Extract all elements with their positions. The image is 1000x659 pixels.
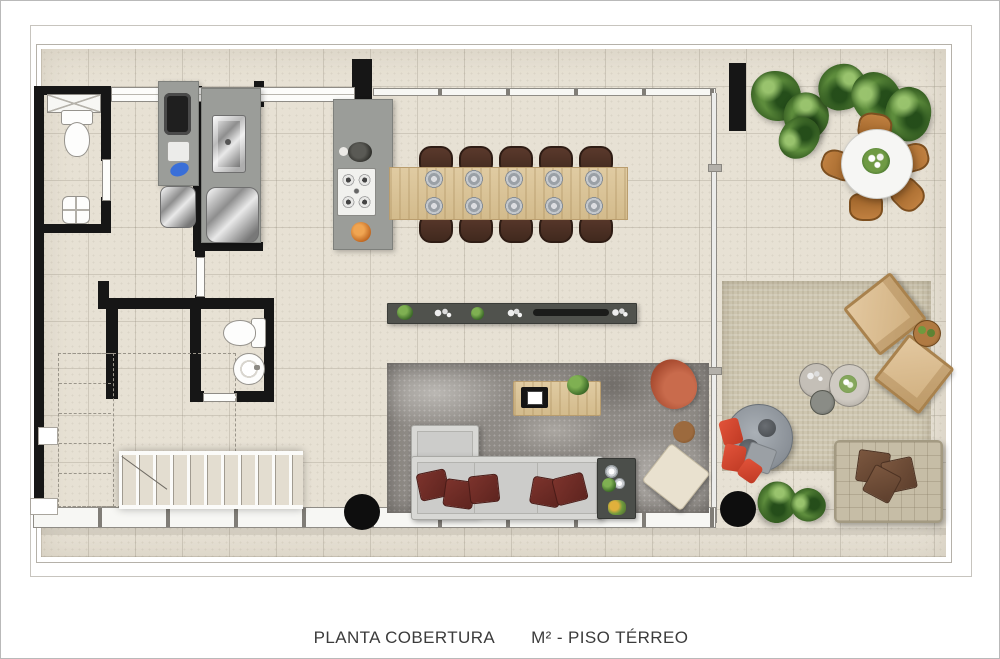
bath1-sink xyxy=(62,196,90,224)
balcony-shadow-line xyxy=(41,528,946,535)
staircase xyxy=(119,451,303,509)
place-setting xyxy=(583,195,605,217)
side-glass-wall xyxy=(711,93,717,523)
island-platter xyxy=(348,142,372,162)
tv-screen xyxy=(527,391,543,405)
powder-toilet-bowl xyxy=(223,320,256,346)
coffee-table-plant xyxy=(567,375,589,395)
place-setting xyxy=(423,195,445,217)
toilet-bowl xyxy=(64,122,90,157)
caption-area-label: M² - PISO TÉRREO xyxy=(531,628,688,648)
place-setting xyxy=(463,168,485,190)
place-setting xyxy=(503,195,525,217)
caption: PLANTA COBERTURA M² - PISO TÉRREO xyxy=(251,628,751,648)
wall-niche xyxy=(38,427,58,445)
powder-sink-round xyxy=(233,353,265,385)
fruit-bowl xyxy=(351,222,371,242)
bath1-door xyxy=(102,159,111,201)
wall-bath1-bottom xyxy=(34,224,111,233)
door-jamb-upper xyxy=(195,249,205,257)
place-setting xyxy=(583,168,605,190)
laundry-door xyxy=(196,257,205,297)
built-in-oven xyxy=(164,93,191,135)
fireplace-slot xyxy=(533,309,609,316)
place-setting xyxy=(503,168,525,190)
structural-column xyxy=(344,494,380,530)
drink-green xyxy=(927,329,935,337)
floor-plan: PLANTA COBERTURA M² - PISO TÉRREO xyxy=(0,0,1000,659)
boiler-small xyxy=(160,186,196,228)
side-table-small xyxy=(810,390,835,415)
coffee-table-tray xyxy=(806,369,824,383)
place-setting xyxy=(543,168,565,190)
top-glass-wall xyxy=(373,88,716,96)
void-dash-line xyxy=(59,473,111,474)
table-flowers xyxy=(839,375,857,393)
serving-plate xyxy=(605,465,618,478)
cooktop xyxy=(337,168,376,216)
void-dash-line xyxy=(59,443,111,444)
place-setting xyxy=(543,195,565,217)
side-table-round xyxy=(673,421,695,443)
glass-joint xyxy=(708,367,722,375)
sideboard-dishes xyxy=(507,308,523,318)
sideboard-cups xyxy=(611,308,629,317)
window-sill-corner xyxy=(30,498,58,515)
structural-column xyxy=(720,491,756,527)
table-centerpiece-flowers xyxy=(862,148,890,174)
wall-bath1-right-upper xyxy=(101,86,111,161)
void-projection-inner xyxy=(58,353,114,507)
powder-sink-tap xyxy=(254,365,260,370)
wall-powder-right xyxy=(264,298,274,401)
boiler-large xyxy=(206,187,259,243)
fruit-tray xyxy=(608,500,626,515)
sideboard-plant xyxy=(397,305,413,320)
sink-drain xyxy=(225,139,231,145)
wall-powder-bottom-b xyxy=(234,391,274,402)
island-bowl-white xyxy=(339,147,348,156)
sofa-pillow xyxy=(468,474,501,505)
sideboard-green-bowl xyxy=(471,307,484,320)
place-setting xyxy=(463,195,485,217)
serving-bowl-green xyxy=(602,478,616,492)
place-setting xyxy=(423,168,445,190)
wall-switch-panel xyxy=(167,141,190,162)
sideboard-pebbles xyxy=(433,308,453,318)
caption-plan-label: PLANTA COBERTURA xyxy=(314,628,495,648)
void-dash-line xyxy=(59,383,111,384)
void-dash-line xyxy=(59,413,111,414)
drink-green xyxy=(918,326,926,334)
glass-joint xyxy=(708,164,722,172)
daybed-cushion xyxy=(758,419,776,437)
wall-terrace-pier xyxy=(729,63,746,131)
